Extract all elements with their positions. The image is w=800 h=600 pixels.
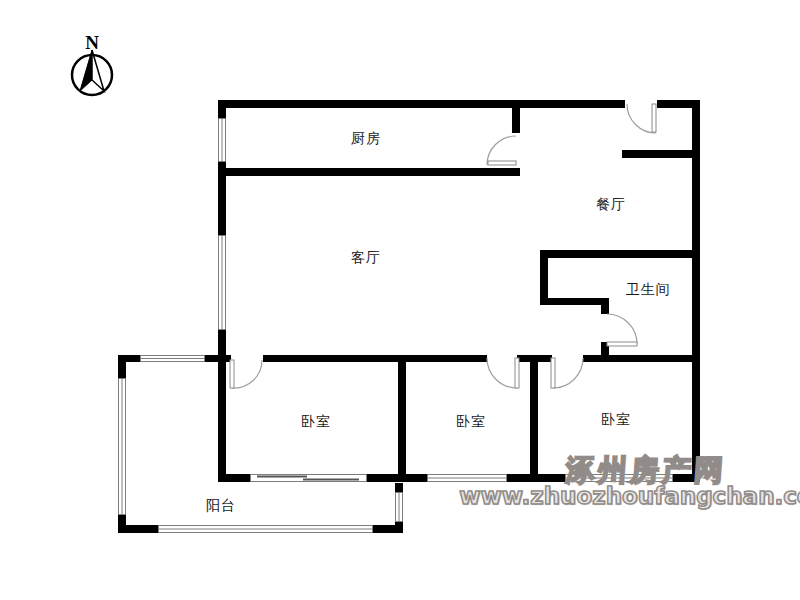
wall-segment — [601, 305, 609, 314]
window — [119, 379, 126, 515]
room-label-balcony: 阳台 — [206, 497, 236, 515]
wall-segment — [205, 355, 231, 362]
wall-segment — [218, 474, 250, 482]
wall-segment — [218, 100, 625, 108]
wall-segment — [540, 250, 548, 305]
wall-segment — [583, 355, 700, 362]
kitchen-door — [487, 136, 516, 165]
sliding-door — [251, 475, 367, 482]
window — [159, 526, 373, 533]
wall-segment — [118, 355, 126, 378]
window — [141, 356, 205, 362]
room-label-bathroom: 卫生间 — [626, 281, 671, 299]
wall-segment — [218, 100, 226, 118]
room-label-dining-room: 餐厅 — [596, 196, 626, 214]
room-label-bedroom-left: 卧室 — [301, 413, 331, 431]
floorplan-drawing — [0, 0, 800, 600]
bathroom-door — [607, 314, 637, 346]
wall-segment — [530, 355, 538, 477]
room-label-bedroom-right: 卧室 — [601, 411, 631, 429]
wall-segment — [367, 474, 427, 482]
floorplan-canvas: 厨房 餐厅 客厅 卫生间 卧室 卧室 卧室 阳台 N 涿州房产网 www.zhu… — [0, 0, 800, 600]
wall-segment — [398, 362, 406, 482]
bedroom-middle-door — [487, 358, 519, 388]
window — [219, 236, 226, 330]
window — [428, 475, 507, 482]
wall-segment — [395, 522, 403, 533]
doors — [230, 104, 656, 388]
wall-segment — [512, 108, 520, 133]
wall-segment — [218, 168, 520, 176]
north-arrow-icon — [72, 50, 112, 95]
window — [396, 493, 403, 522]
room-label-bedroom-middle: 卧室 — [456, 413, 486, 431]
wall-segment — [540, 298, 609, 305]
entry-door — [627, 104, 656, 133]
wall-segment — [622, 150, 692, 158]
bedroom-right-door — [551, 358, 583, 388]
room-label-kitchen: 厨房 — [351, 130, 381, 148]
room-label-living-room: 客厅 — [351, 249, 381, 267]
watermark-site-url: www.zhuozhoufangchan.com — [459, 483, 800, 509]
bedroom-left-door — [230, 360, 262, 388]
window — [219, 119, 226, 162]
wall-segment — [395, 483, 403, 492]
wall-segment — [540, 250, 700, 258]
wall-segment — [118, 525, 158, 533]
wall-segment — [507, 474, 565, 482]
wall-segment — [263, 355, 487, 362]
wall-segment — [218, 330, 226, 482]
north-label: N — [85, 32, 99, 54]
wall-segment — [692, 100, 700, 482]
